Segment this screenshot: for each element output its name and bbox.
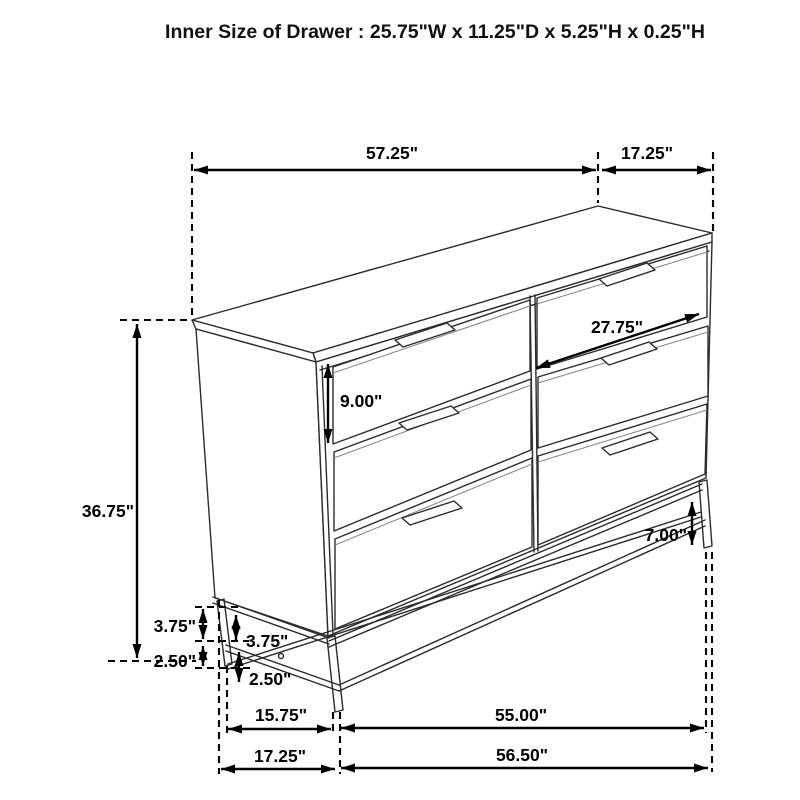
- dim-label-drawer-height: 9.00": [340, 391, 382, 411]
- dim-label-leg-height: 7.00": [645, 525, 687, 545]
- dim-label-base-upper-outer: 3.75": [154, 616, 196, 636]
- dresser-dimension-diagram: Inner Size of Drawer : 25.75"W x 11.25"D…: [0, 0, 800, 800]
- dim-label-top-depth: 17.25": [621, 143, 673, 163]
- side-panel: [196, 329, 328, 636]
- diagram-title: Inner Size of Drawer : 25.75"W x 11.25"D…: [165, 21, 705, 43]
- dim-label-overall-height: 36.75": [82, 501, 134, 521]
- dim-label-bottom-front-overall: 56.50": [496, 745, 548, 765]
- dim-label-bottom-side-overall: 17.25": [254, 746, 306, 766]
- dim-label-base-lower-inner: 2.50": [249, 669, 291, 689]
- dim-label-drawer-width: 27.75": [591, 317, 643, 337]
- dim-label-base-lower-outer: 2.50": [154, 651, 196, 671]
- dim-label-bottom-front-span: 55.00": [495, 705, 547, 725]
- diagram-svg: Inner Size of Drawer : 25.75"W x 11.25"D…: [0, 0, 800, 800]
- dim-label-bottom-side-span: 15.75": [255, 705, 307, 725]
- dim-label-top-width: 57.25": [366, 143, 418, 163]
- dim-label-base-upper-inner: 3.75": [246, 631, 288, 651]
- base-screw-detail: [279, 654, 284, 659]
